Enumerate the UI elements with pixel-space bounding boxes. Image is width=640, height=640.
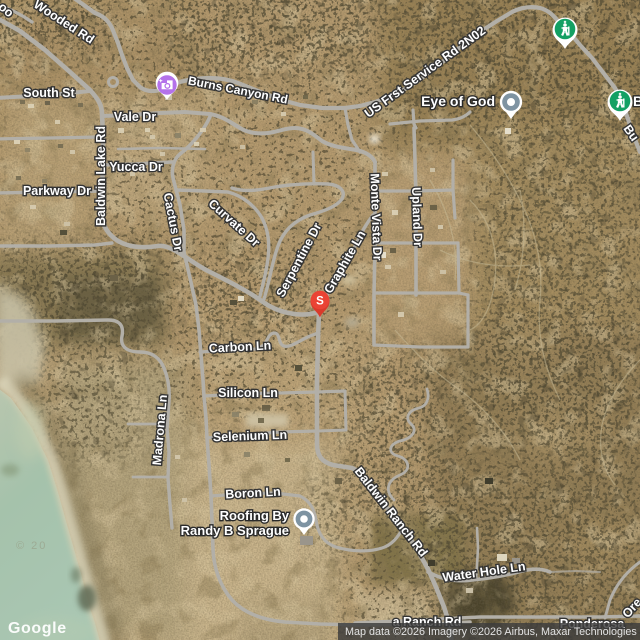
svg-text:Parkway Dr: Parkway Dr <box>23 184 91 198</box>
svg-text:© 20: © 20 <box>16 540 47 552</box>
svg-text:Roofing By: Roofing By <box>220 508 290 523</box>
svg-text:Eye of God: Eye of God <box>421 93 495 109</box>
svg-text:Map data ©2026 Imagery ©2026 A: Map data ©2026 Imagery ©2026 Airbus, Max… <box>345 626 637 638</box>
svg-text:Google: Google <box>8 620 67 637</box>
svg-text:Boron Ln: Boron Ln <box>225 485 281 502</box>
svg-text:Baldwin Lake Rd: Baldwin Lake Rd <box>94 126 108 226</box>
svg-text:S: S <box>316 295 324 307</box>
svg-text:Vale Dr: Vale Dr <box>114 110 157 124</box>
svg-text:South St: South St <box>23 86 75 100</box>
svg-text:Silicon Ln: Silicon Ln <box>218 386 278 400</box>
svg-text:Randy B Sprague: Randy B Sprague <box>181 523 289 538</box>
svg-text:Selenium Ln: Selenium Ln <box>213 428 288 445</box>
svg-text:B: B <box>633 93 640 109</box>
svg-text:Yucca Dr: Yucca Dr <box>109 160 163 174</box>
svg-text:Upland Dr: Upland Dr <box>409 187 425 247</box>
